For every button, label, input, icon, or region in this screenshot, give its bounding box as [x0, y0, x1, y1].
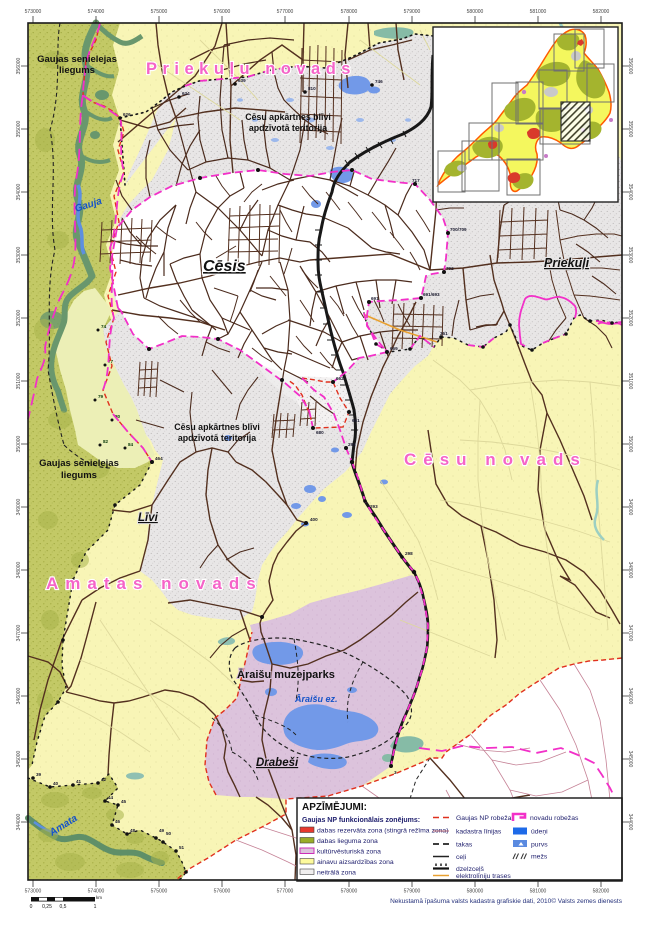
svg-text:353000: 353000: [627, 247, 633, 264]
svg-text:577000: 577000: [277, 9, 294, 15]
svg-text:0,5: 0,5: [60, 904, 67, 910]
svg-text:Drabeši: Drabeši: [256, 757, 299, 769]
svg-text:669: 669: [390, 346, 398, 351]
svg-text:346000: 346000: [627, 688, 633, 705]
svg-text:639: 639: [238, 78, 246, 83]
svg-text:355000: 355000: [627, 121, 633, 138]
svg-text:349000: 349000: [16, 498, 22, 515]
svg-text:356000: 356000: [16, 57, 22, 74]
svg-text:liegums: liegums: [59, 65, 95, 76]
svg-text:346000: 346000: [16, 687, 22, 704]
svg-text:581000: 581000: [530, 889, 547, 895]
svg-text:344000: 344000: [16, 813, 22, 830]
svg-text:Priekuļu novads: Priekuļu novads: [146, 60, 356, 78]
svg-text:582000: 582000: [593, 889, 610, 895]
svg-text:49: 49: [159, 828, 165, 833]
svg-text:Āraišu ez.: Āraišu ez.: [294, 694, 338, 704]
svg-text:810: 810: [308, 86, 316, 91]
svg-text:Līvi: Līvi: [138, 512, 159, 524]
svg-text:apdzīvotā teritorija: apdzīvotā teritorija: [249, 123, 327, 133]
svg-text:578000: 578000: [341, 9, 358, 15]
svg-text:Amatas novads: Amatas novads: [46, 574, 263, 593]
svg-text:Cēsu apkārtnes blīvi: Cēsu apkārtnes blīvi: [245, 112, 331, 122]
svg-text:355000: 355000: [16, 120, 22, 137]
svg-text:takas: takas: [456, 842, 473, 849]
svg-text:626: 626: [123, 112, 131, 117]
svg-text:350000: 350000: [627, 436, 633, 453]
svg-text:kadastra līnijas: kadastra līnijas: [456, 829, 502, 836]
svg-text:48: 48: [130, 828, 136, 833]
svg-text:km: km: [96, 895, 102, 900]
svg-text:700/709: 700/709: [450, 227, 467, 232]
svg-text:Gaujas NP funkcionālais zonēju: Gaujas NP funkcionālais zonējums:: [302, 817, 420, 824]
svg-text:79: 79: [98, 394, 104, 399]
svg-text:298: 298: [348, 442, 356, 447]
svg-text:574000: 574000: [88, 9, 105, 15]
svg-text:apdzīvotā teritorija: apdzīvotā teritorija: [178, 433, 256, 443]
svg-text:575000: 575000: [151, 9, 168, 15]
svg-text:ūdeņi: ūdeņi: [531, 829, 548, 836]
svg-text:702: 702: [446, 266, 454, 271]
svg-text:347000: 347000: [627, 625, 633, 642]
svg-text:41: 41: [76, 779, 82, 784]
svg-text:691/693: 691/693: [423, 292, 440, 297]
svg-text:82: 82: [103, 439, 109, 444]
svg-text:elektrolīniju trases: elektrolīniju trases: [456, 873, 511, 880]
svg-text:44: 44: [108, 795, 114, 800]
svg-text:573000: 573000: [25, 9, 42, 15]
svg-text:580000: 580000: [467, 889, 484, 895]
svg-text:348000: 348000: [16, 561, 22, 578]
svg-text:356000: 356000: [627, 58, 633, 75]
svg-text:662: 662: [336, 376, 344, 381]
svg-text:579000: 579000: [404, 889, 421, 895]
svg-text:1: 1: [94, 904, 97, 910]
svg-text:40: 40: [53, 781, 59, 786]
svg-text:Gaujas NP robeža: Gaujas NP robeža: [456, 815, 512, 822]
svg-text:novadu robežas: novadu robežas: [530, 815, 579, 822]
svg-text:42: 42: [101, 777, 107, 782]
svg-text:354000: 354000: [16, 183, 22, 200]
svg-text:575000: 575000: [151, 889, 168, 895]
svg-text:400: 400: [310, 517, 318, 522]
svg-text:464: 464: [155, 456, 163, 461]
svg-text:84: 84: [128, 442, 134, 447]
svg-text:352000: 352000: [627, 310, 633, 327]
svg-text:347000: 347000: [16, 624, 22, 641]
svg-text:691: 691: [371, 296, 379, 301]
svg-text:353000: 353000: [16, 246, 22, 263]
svg-text:ceļi: ceļi: [456, 854, 467, 861]
svg-text:344000: 344000: [627, 814, 633, 831]
svg-text:46: 46: [115, 819, 121, 824]
svg-text:Nekustamā īpašuma valsts kadas: Nekustamā īpašuma valsts kadastra grafis…: [390, 897, 623, 905]
svg-text:348000: 348000: [627, 562, 633, 579]
svg-text:634: 634: [182, 91, 190, 96]
svg-text:purvs: purvs: [531, 842, 548, 849]
svg-text:293: 293: [370, 504, 378, 509]
svg-text:liegums: liegums: [61, 470, 97, 481]
svg-text:51: 51: [179, 845, 185, 850]
svg-text:Cēsu novads: Cēsu novads: [404, 450, 587, 469]
svg-text:0,25: 0,25: [42, 904, 52, 910]
svg-text:345000: 345000: [16, 750, 22, 767]
svg-text:298: 298: [405, 551, 413, 556]
svg-text:582000: 582000: [593, 9, 610, 15]
svg-text:APZĪMĒJUMI:: APZĪMĒJUMI:: [302, 801, 367, 813]
svg-text:576000: 576000: [214, 889, 231, 895]
svg-text:579000: 579000: [404, 9, 421, 15]
svg-text:574000: 574000: [88, 889, 105, 895]
svg-text:345000: 345000: [627, 751, 633, 768]
svg-text:ainavu aizsardzības zona: ainavu aizsardzības zona: [317, 859, 394, 866]
svg-text:74: 74: [101, 324, 107, 329]
svg-text:661: 661: [352, 418, 360, 423]
svg-text:Priekuļi: Priekuļi: [544, 256, 590, 270]
svg-text:dzelzceļš: dzelzceļš: [456, 866, 485, 873]
svg-text:mežs: mežs: [531, 854, 548, 861]
svg-text:50: 50: [166, 831, 172, 836]
svg-text:577000: 577000: [277, 889, 294, 895]
svg-text:0: 0: [30, 904, 33, 910]
svg-text:746: 746: [375, 79, 383, 84]
svg-text:3: 3: [394, 770, 397, 775]
svg-text:dabas lieguma zona: dabas lieguma zona: [317, 838, 378, 845]
svg-text:351000: 351000: [16, 372, 22, 389]
svg-text:580000: 580000: [467, 9, 484, 15]
svg-text:351000: 351000: [627, 373, 633, 390]
svg-text:581000: 581000: [530, 9, 547, 15]
svg-text:354000: 354000: [627, 184, 633, 201]
svg-text:dabas rezervāta zona (stingrā: dabas rezervāta zona (stingrā režīma zon…: [317, 828, 448, 835]
svg-text:39: 39: [36, 772, 42, 777]
svg-text:Cēsu apkārtnes blīvi: Cēsu apkārtnes blīvi: [174, 422, 260, 432]
svg-text:573000: 573000: [25, 889, 42, 895]
svg-text:kultūrvēsturiskā zona: kultūrvēsturiskā zona: [317, 849, 381, 856]
svg-text:361: 361: [440, 331, 448, 336]
svg-text:350000: 350000: [16, 435, 22, 452]
svg-text:717: 717: [412, 178, 420, 183]
svg-text:576000: 576000: [214, 9, 231, 15]
svg-text:neitrālā zona: neitrālā zona: [317, 870, 356, 877]
svg-text:352000: 352000: [16, 309, 22, 326]
svg-text:349000: 349000: [627, 499, 633, 516]
svg-text:Cēsis: Cēsis: [203, 258, 246, 275]
svg-text:Gaujas senielejas: Gaujas senielejas: [37, 54, 117, 65]
svg-text:Āraišu muzejparks: Āraišu muzejparks: [237, 669, 335, 681]
svg-text:578000: 578000: [341, 889, 358, 895]
svg-text:45: 45: [121, 799, 127, 804]
svg-text:680: 680: [316, 430, 324, 435]
svg-text:Gaujas senielejas: Gaujas senielejas: [39, 458, 119, 469]
